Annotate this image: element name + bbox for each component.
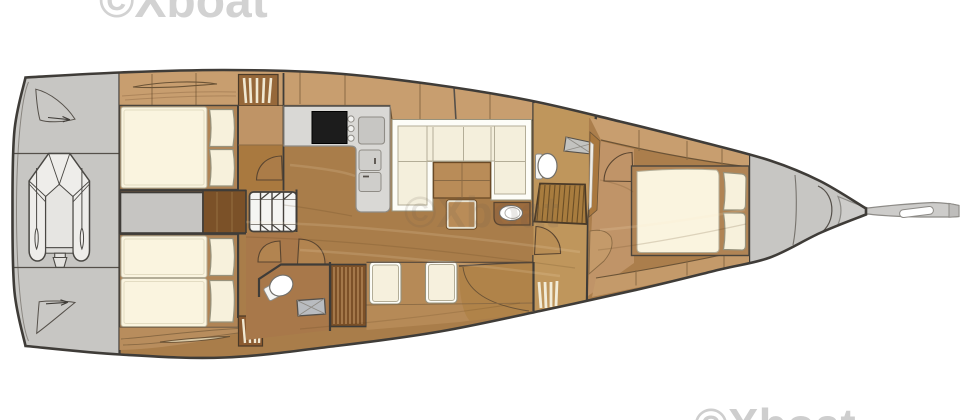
svg-text:©Xboat: ©Xboat	[694, 399, 856, 420]
svg-text:©Xboat: ©Xboat	[404, 188, 559, 237]
svg-text:©Xboat: ©Xboat	[99, 0, 268, 28]
